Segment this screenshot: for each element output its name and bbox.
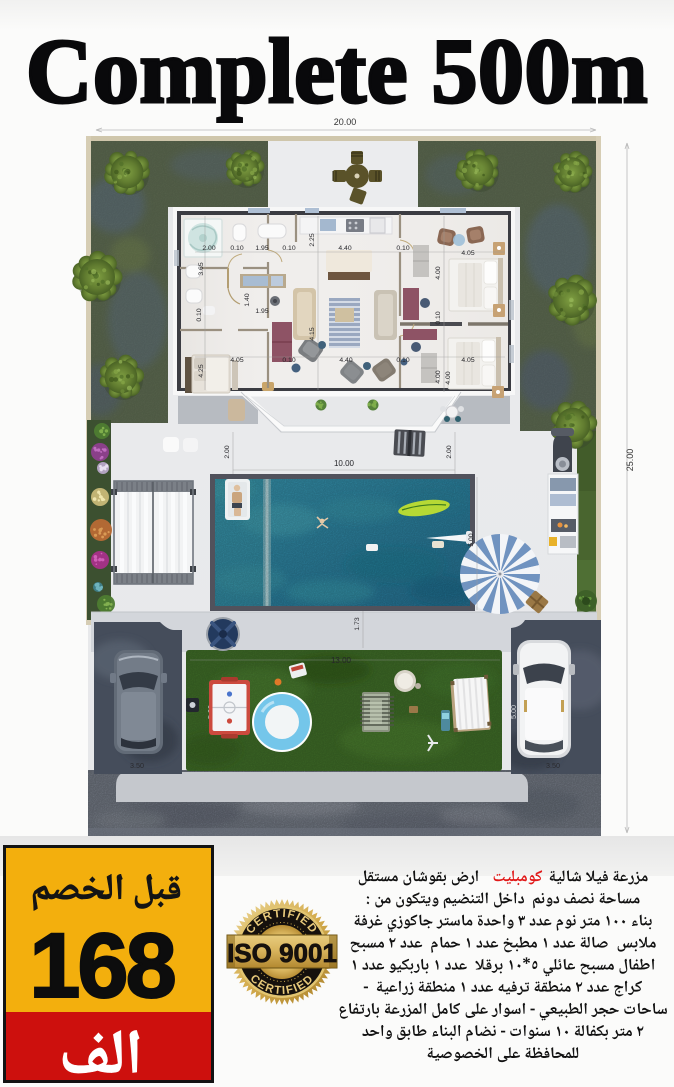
svg-text:0.10: 0.10 xyxy=(396,245,409,252)
svg-text:1.73: 1.73 xyxy=(354,617,361,630)
svg-text:2.00: 2.00 xyxy=(446,445,453,458)
svg-text:13.00: 13.00 xyxy=(331,656,352,665)
svg-text:4.25: 4.25 xyxy=(198,364,205,377)
svg-text:4.05: 4.05 xyxy=(461,250,474,257)
svg-text:0.10: 0.10 xyxy=(396,357,409,364)
svg-text:2.25: 2.25 xyxy=(309,233,316,246)
svg-text:4.15: 4.15 xyxy=(309,327,316,340)
svg-text:0.10: 0.10 xyxy=(282,357,295,364)
svg-text:3.50: 3.50 xyxy=(130,761,144,770)
svg-text:4.40: 4.40 xyxy=(339,357,352,364)
svg-text:5.00: 5.00 xyxy=(509,705,518,719)
svg-text:4.05: 4.05 xyxy=(230,357,243,364)
svg-text:0.10: 0.10 xyxy=(435,311,442,324)
svg-text:ISO 9001: ISO 9001 xyxy=(227,938,337,968)
svg-text:3.65: 3.65 xyxy=(198,262,205,275)
svg-text:1.40: 1.40 xyxy=(244,293,251,306)
svg-text:0.10: 0.10 xyxy=(230,245,243,252)
svg-text:4.00: 4.00 xyxy=(445,371,452,384)
svg-text:0.10: 0.10 xyxy=(282,245,295,252)
svg-text:0.10: 0.10 xyxy=(196,308,203,321)
svg-text:4.00: 4.00 xyxy=(435,266,442,279)
svg-text:10.00: 10.00 xyxy=(334,459,355,468)
svg-text:1.95: 1.95 xyxy=(255,245,268,252)
svg-text:2.00: 2.00 xyxy=(224,445,231,458)
svg-text:1.95: 1.95 xyxy=(255,308,268,315)
svg-text:20.00: 20.00 xyxy=(334,117,357,127)
svg-text:4.40: 4.40 xyxy=(338,245,351,252)
svg-text:3.50: 3.50 xyxy=(546,761,560,770)
svg-text:4.00: 4.00 xyxy=(435,370,442,383)
svg-text:25.00: 25.00 xyxy=(625,449,635,472)
svg-text:5.00: 5.00 xyxy=(468,533,475,546)
svg-text:2.00: 2.00 xyxy=(202,245,215,252)
svg-text:4.05: 4.05 xyxy=(461,357,474,364)
